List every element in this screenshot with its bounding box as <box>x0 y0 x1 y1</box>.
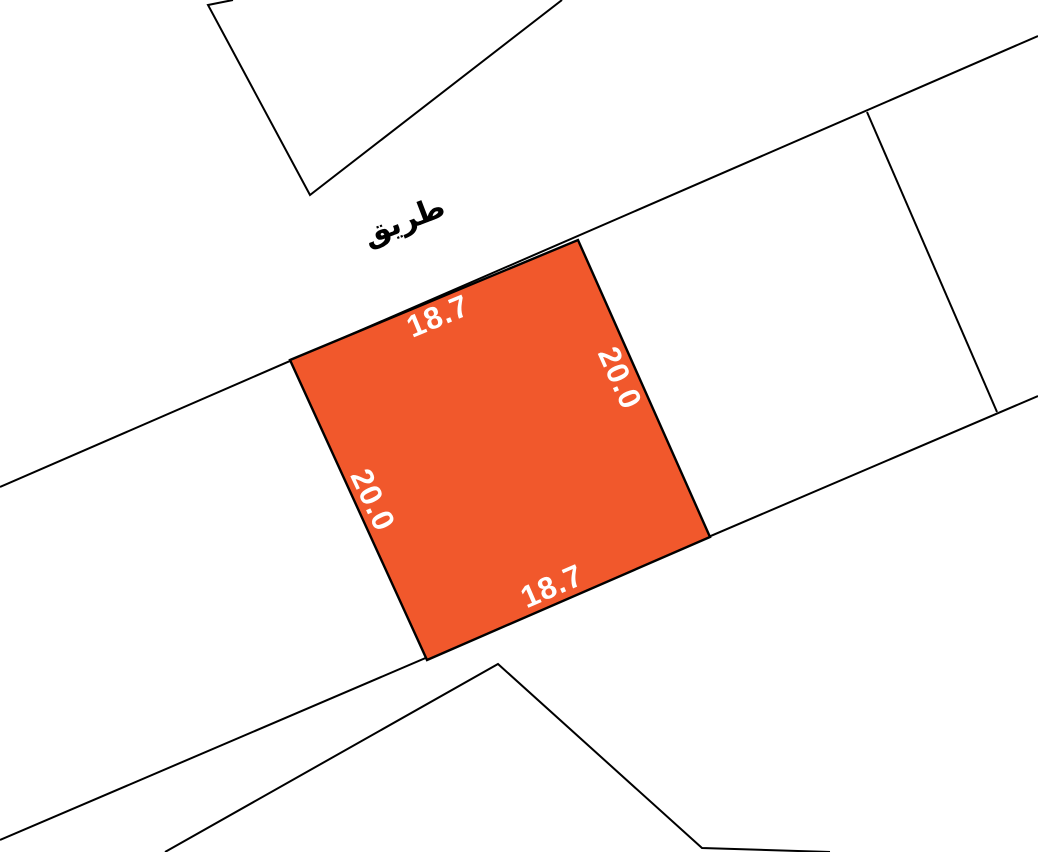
cadastral-map: طريق 18.7 20.0 20.0 18.7 <box>0 0 1038 852</box>
